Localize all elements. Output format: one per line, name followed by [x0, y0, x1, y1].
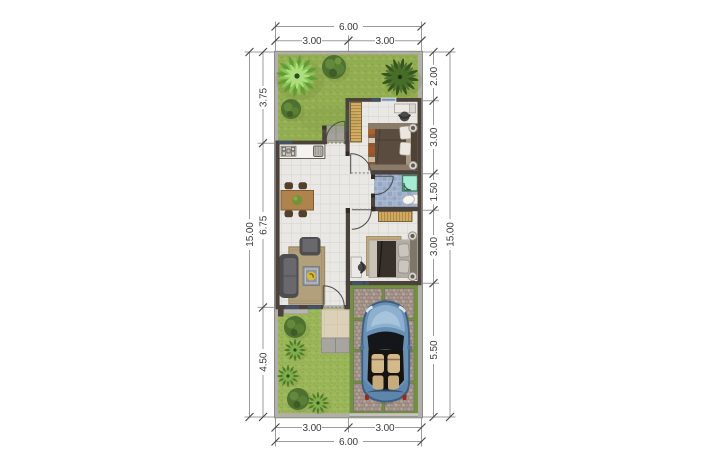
- svg-text:2.00: 2.00: [429, 66, 440, 86]
- svg-text:15.00: 15.00: [245, 222, 256, 247]
- svg-text:6.75: 6.75: [259, 215, 270, 235]
- svg-text:3.00: 3.00: [375, 36, 395, 47]
- svg-text:3.00: 3.00: [429, 127, 440, 147]
- svg-text:3.00: 3.00: [375, 423, 395, 434]
- svg-text:5.50: 5.50: [429, 340, 440, 360]
- svg-text:3.00: 3.00: [302, 423, 322, 434]
- svg-text:6.00: 6.00: [339, 437, 359, 448]
- svg-text:3.00: 3.00: [302, 36, 322, 47]
- svg-text:1.50: 1.50: [429, 182, 440, 202]
- svg-text:3.00: 3.00: [429, 237, 440, 257]
- svg-text:4.50: 4.50: [259, 352, 270, 372]
- svg-text:15.00: 15.00: [446, 222, 457, 247]
- svg-text:3.75: 3.75: [259, 88, 270, 108]
- svg-text:6.00: 6.00: [339, 22, 359, 33]
